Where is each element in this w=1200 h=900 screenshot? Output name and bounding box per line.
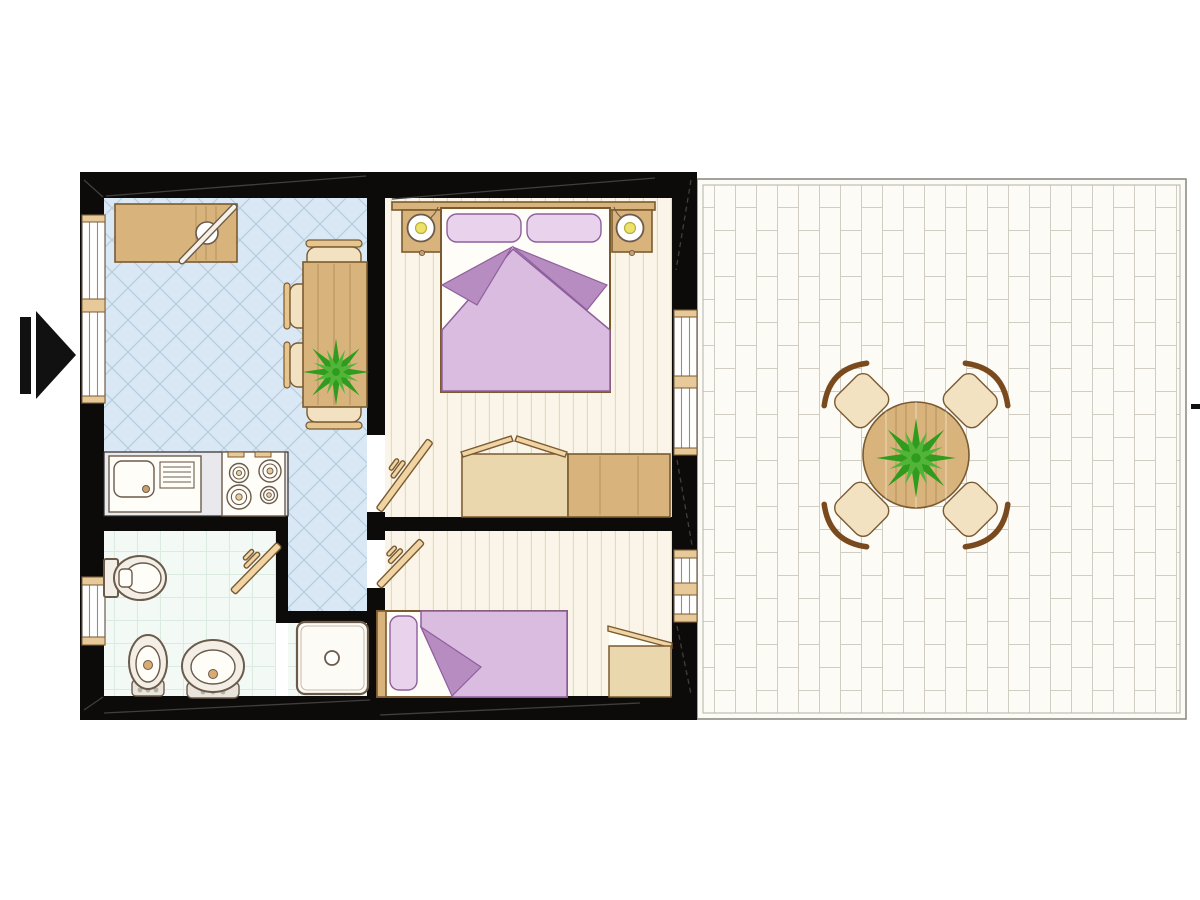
sink-unit	[109, 456, 201, 512]
wardrobe-closed	[568, 454, 670, 517]
floor-plan	[0, 0, 1200, 900]
burner	[261, 487, 278, 504]
worktop-desk	[115, 204, 237, 262]
kitchen-counter	[104, 452, 288, 516]
single-bed	[377, 611, 567, 697]
bed-headboard	[377, 611, 386, 697]
pillow	[390, 616, 417, 690]
toilet	[104, 556, 166, 600]
entrance-arrow	[20, 311, 76, 399]
double-bed	[441, 208, 610, 392]
potted-plant	[876, 418, 956, 498]
nightstand	[402, 207, 442, 256]
potted-plant	[303, 339, 370, 406]
pillow	[447, 214, 521, 242]
nightstand	[612, 207, 652, 256]
shower-tray	[297, 622, 368, 694]
window	[82, 577, 105, 645]
stove	[222, 452, 285, 516]
scale-tick	[1191, 404, 1200, 409]
hallway-floor	[288, 452, 367, 611]
window	[674, 550, 697, 622]
burner	[259, 460, 281, 482]
terrace	[697, 179, 1186, 719]
burner	[227, 485, 251, 509]
washbasin	[182, 640, 244, 698]
pillow	[527, 214, 601, 242]
window	[82, 215, 105, 403]
bidet	[129, 635, 167, 696]
window	[674, 310, 697, 455]
burner	[230, 464, 249, 483]
